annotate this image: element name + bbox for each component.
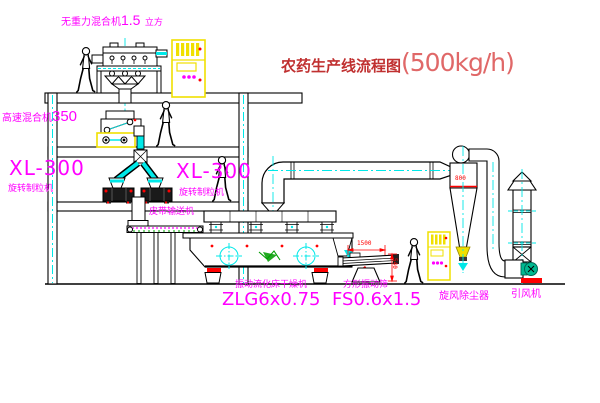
fan-label: 引风机 bbox=[511, 290, 541, 300]
induced-draft-fan bbox=[505, 260, 542, 283]
gravity-mixer-unit: 立方 bbox=[145, 17, 163, 27]
dryer-model-label: ZLG6x0.75 bbox=[222, 291, 321, 309]
fluid-bed-dryer bbox=[183, 211, 354, 283]
cabinet-buttons bbox=[182, 75, 196, 79]
title-capacity: (500kg/h) bbox=[401, 48, 514, 77]
granulator-left-name: 旋转制粒机 bbox=[8, 184, 53, 193]
sieve-length-dimension: 1500 bbox=[357, 241, 371, 247]
person-figure-ground bbox=[405, 239, 423, 283]
person-figure-roof bbox=[77, 48, 95, 92]
gravity-mixer-label: 无重力混合机1.5 立方 bbox=[61, 13, 163, 29]
granulator-left-unit bbox=[103, 178, 134, 204]
process-flow-diagram: 无重力混合机1.5 立方 农药生产线流程图(500kg/h) 高速混合机350 … bbox=[0, 0, 600, 403]
sieve-name-label: 方形振动筛 bbox=[343, 280, 388, 289]
granulator-right-name: 旋转制粒机 bbox=[179, 188, 224, 197]
hs-mixer-name: 高速混合机 bbox=[2, 113, 52, 124]
dryer-name-label: 振动流化床干燥机 bbox=[235, 280, 307, 289]
gravity-mixer-size: 1.5 bbox=[121, 12, 140, 28]
vibration-mount bbox=[314, 268, 328, 273]
indicator-light bbox=[199, 79, 202, 82]
high-speed-mixer bbox=[97, 111, 144, 149]
sieve-model-label: FS0.6x1.5 bbox=[332, 291, 421, 309]
vibration-mount bbox=[207, 268, 221, 273]
mixer-outlet-pipe bbox=[137, 136, 144, 149]
belt-conveyor-label: 皮带输送机 bbox=[149, 207, 194, 216]
title-text: 农药生产线流程图 bbox=[281, 58, 401, 75]
cyclone-separator bbox=[450, 146, 505, 277]
control-cabinet-1 bbox=[172, 40, 205, 97]
exhaust-duct bbox=[262, 156, 452, 214]
cyclone-label: 旋风除尘器 bbox=[439, 292, 489, 302]
mixer-discharge-pipe bbox=[119, 89, 131, 103]
sieve-height-dimension: 540 bbox=[391, 258, 397, 269]
granulator-left-model: XL-300 bbox=[9, 158, 85, 178]
gravity-mixer-name: 无重力混合机 bbox=[61, 17, 121, 28]
diagram-title: 农药生产线流程图(500kg/h) bbox=[281, 50, 514, 75]
cyclone-dimension: 800 bbox=[455, 176, 466, 182]
indicator-light bbox=[199, 48, 202, 51]
fan-base bbox=[521, 278, 542, 283]
control-cabinet-2 bbox=[428, 232, 450, 280]
person-figure-floor2 bbox=[157, 102, 175, 146]
granulator-right-model: XL-300 bbox=[176, 161, 252, 181]
hs-mixer-model: 350 bbox=[52, 108, 77, 125]
granulator-right-unit bbox=[141, 178, 172, 204]
high-speed-mixer-label: 高速混合机350 bbox=[2, 109, 77, 125]
